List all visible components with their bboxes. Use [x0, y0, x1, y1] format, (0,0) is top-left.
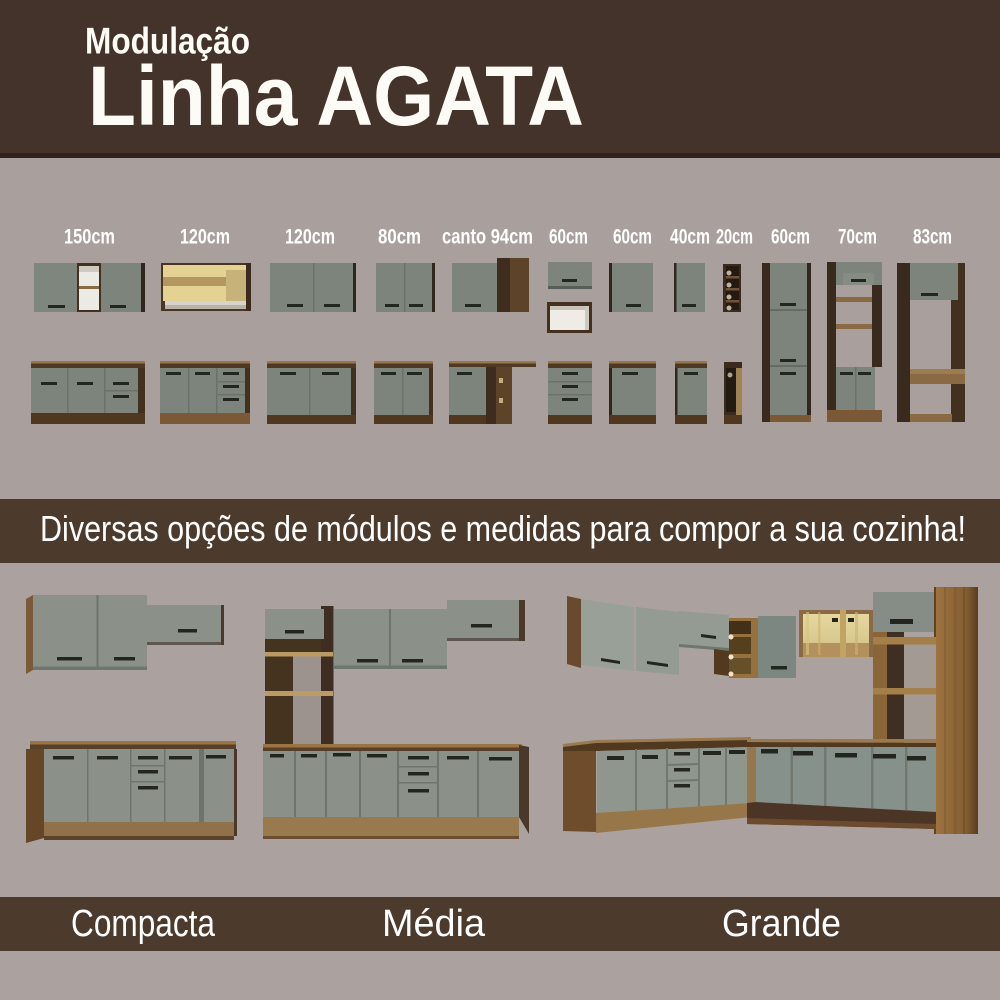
svg-text:120cm: 120cm [285, 225, 335, 249]
svg-text:60cm: 60cm [549, 225, 588, 249]
svg-text:Compacta: Compacta [71, 903, 216, 945]
svg-text:70cm: 70cm [838, 225, 877, 249]
svg-text:Linha AGATA: Linha AGATA [88, 49, 584, 143]
svg-text:83cm: 83cm [913, 225, 952, 249]
svg-text:120cm: 120cm [180, 225, 230, 249]
svg-text:canto 94cm: canto 94cm [442, 225, 533, 249]
svg-text:20cm: 20cm [716, 225, 753, 249]
svg-text:60cm: 60cm [613, 225, 652, 249]
svg-text:150cm: 150cm [64, 225, 115, 249]
svg-text:Grande: Grande [722, 903, 841, 945]
svg-text:60cm: 60cm [771, 225, 810, 249]
svg-text:Diversas opções de módulos e m: Diversas opções de módulos e medidas par… [40, 508, 966, 549]
svg-text:Média: Média [382, 903, 486, 945]
svg-text:80cm: 80cm [378, 225, 421, 249]
svg-text:40cm: 40cm [670, 225, 710, 249]
